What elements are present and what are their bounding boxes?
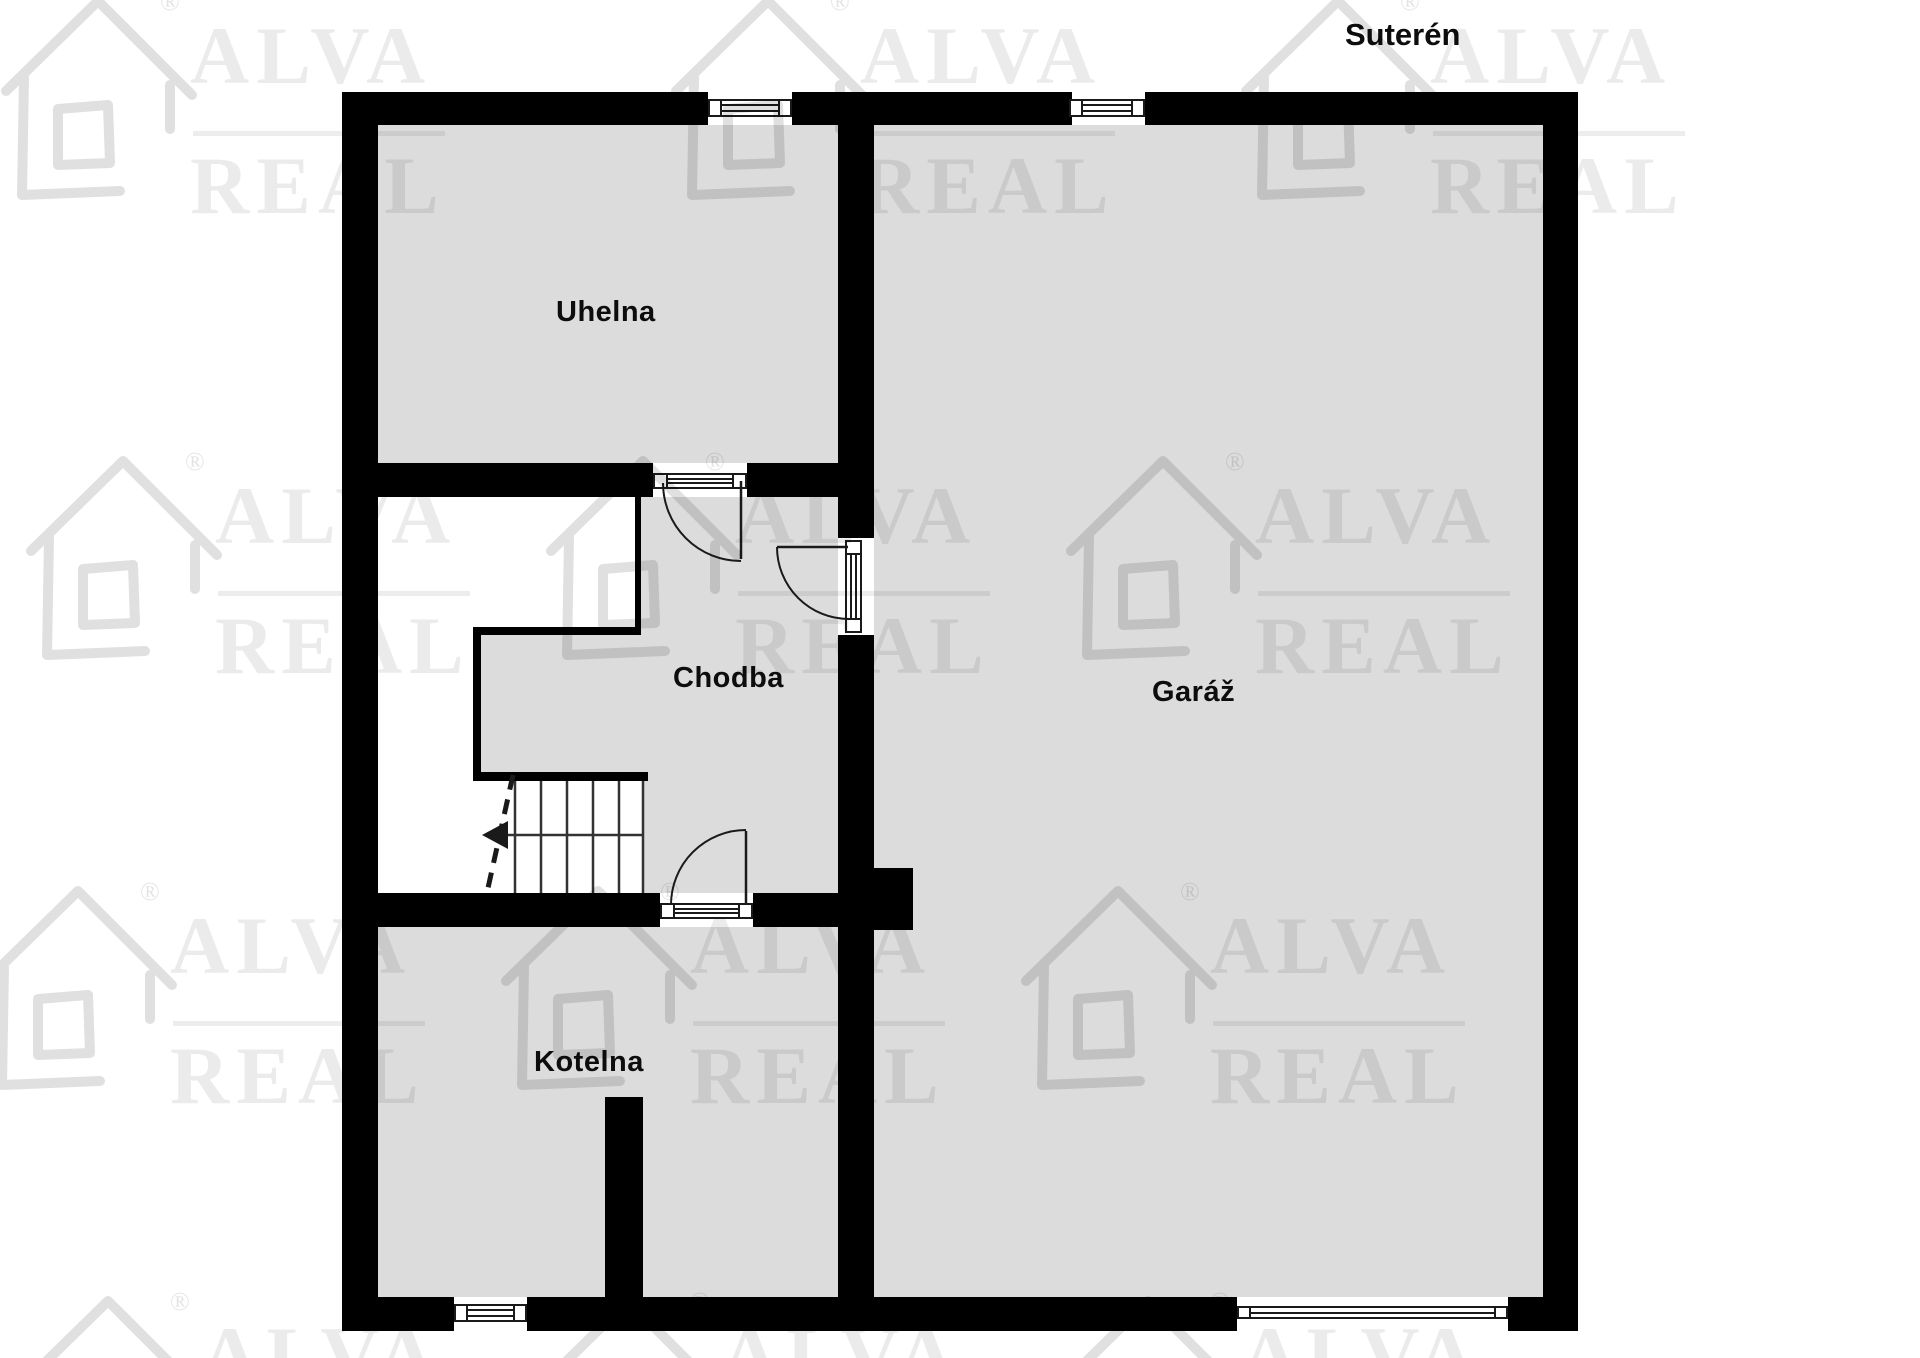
wall-outer-bottom-2 <box>527 1297 1237 1331</box>
door-panel-line-icon <box>668 482 732 484</box>
wall-outer-left <box>342 92 378 1331</box>
wall-step-horizontal <box>473 627 641 635</box>
garage-door-line-icon <box>1251 1312 1494 1314</box>
window-pane-icon <box>722 110 778 112</box>
wall-outer-top-1 <box>342 92 708 125</box>
wall-stairs-top <box>473 772 648 781</box>
door-jamb-icon <box>847 618 860 620</box>
door-panel-line-icon <box>850 555 852 618</box>
watermark-registered-icon: ® <box>170 1287 190 1317</box>
window-jamb-icon <box>513 1306 515 1320</box>
watermark-brand-line1: ALVA <box>1240 1315 1482 1358</box>
window-symbol-garage <box>1069 99 1145 117</box>
watermark-brand-line1: ALVA <box>190 15 432 97</box>
wall-outer-top-3 <box>1145 92 1578 125</box>
stairwell-area <box>481 781 643 893</box>
watermark-house-icon <box>0 0 200 208</box>
door-frame-uhelna <box>653 473 747 489</box>
window-symbol-uhelna <box>708 99 792 117</box>
room-label-chodba: Chodba <box>673 662 784 695</box>
void-area-lower <box>378 627 473 781</box>
garage-door-jamb-icon <box>1494 1308 1496 1317</box>
wall-kotelna-right <box>753 893 838 927</box>
watermark-brand-line1: ALVA <box>860 15 1102 97</box>
watermark-house-icon <box>10 1293 210 1358</box>
door-jamb-icon <box>732 475 734 487</box>
room-label-uhelna: Uhelna <box>556 296 656 329</box>
room-label-kotelna: Kotelna <box>534 1046 644 1079</box>
room-label-garaz: Garáž <box>1152 676 1235 709</box>
window-pane-icon <box>1083 110 1131 112</box>
wall-step-vertical-2 <box>473 632 481 781</box>
door-frame-garage <box>845 540 862 633</box>
door-panel-line-icon <box>675 908 738 910</box>
window-jamb-icon <box>778 101 780 115</box>
wall-outer-bottom-1 <box>342 1297 454 1331</box>
window-pane-icon <box>722 104 778 106</box>
watermark-registered-icon: ® <box>160 0 180 17</box>
wall-outer-bottom-3 <box>1508 1297 1578 1331</box>
watermark-registered-icon: ® <box>1400 0 1420 17</box>
window-pane-icon <box>468 1315 513 1317</box>
void-area-beside-stairs <box>378 781 481 893</box>
door-jamb-icon <box>738 905 740 917</box>
door-jamb-icon <box>847 553 860 555</box>
watermark-brand-line1: ALVA <box>1430 15 1672 97</box>
watermark-registered-icon: ® <box>185 447 205 477</box>
wall-pier <box>838 868 913 930</box>
wall-divider-bottom <box>838 930 874 1297</box>
watermark-house-icon <box>25 453 225 668</box>
wall-uhelna-chodba-right <box>747 463 838 497</box>
watermark-registered-icon: ® <box>830 0 850 17</box>
window-symbol-kotelna <box>454 1304 527 1322</box>
door-panel-line-icon <box>668 478 732 480</box>
door-jamb-icon <box>673 905 675 917</box>
wall-divider-top <box>838 125 874 538</box>
door-jamb-icon <box>666 475 668 487</box>
wall-kotelna-stub <box>605 1097 643 1297</box>
door-panel-line-icon <box>855 555 857 618</box>
floor-plan-canvas: Suterén <box>0 0 1920 1358</box>
window-pane-icon <box>468 1309 513 1311</box>
wall-kotelna-left <box>378 893 660 927</box>
wall-outer-top-2 <box>792 92 1072 125</box>
window-jamb-icon <box>1131 101 1133 115</box>
watermark-registered-icon: ® <box>140 877 160 907</box>
garage-door-symbol <box>1237 1306 1508 1319</box>
door-frame-kotelna <box>660 903 753 919</box>
wall-divider-middle <box>838 635 874 868</box>
door-panel-line-icon <box>675 912 738 914</box>
watermark-house-icon <box>0 883 180 1098</box>
wall-step-vertical-1 <box>635 497 641 632</box>
plan-title: Suterén <box>1345 17 1460 53</box>
void-area-upper <box>378 497 635 627</box>
interior-floor <box>378 125 1543 1297</box>
wall-outer-right <box>1543 92 1578 1331</box>
wall-uhelna-chodba-left <box>342 463 653 497</box>
window-pane-icon <box>1083 104 1131 106</box>
